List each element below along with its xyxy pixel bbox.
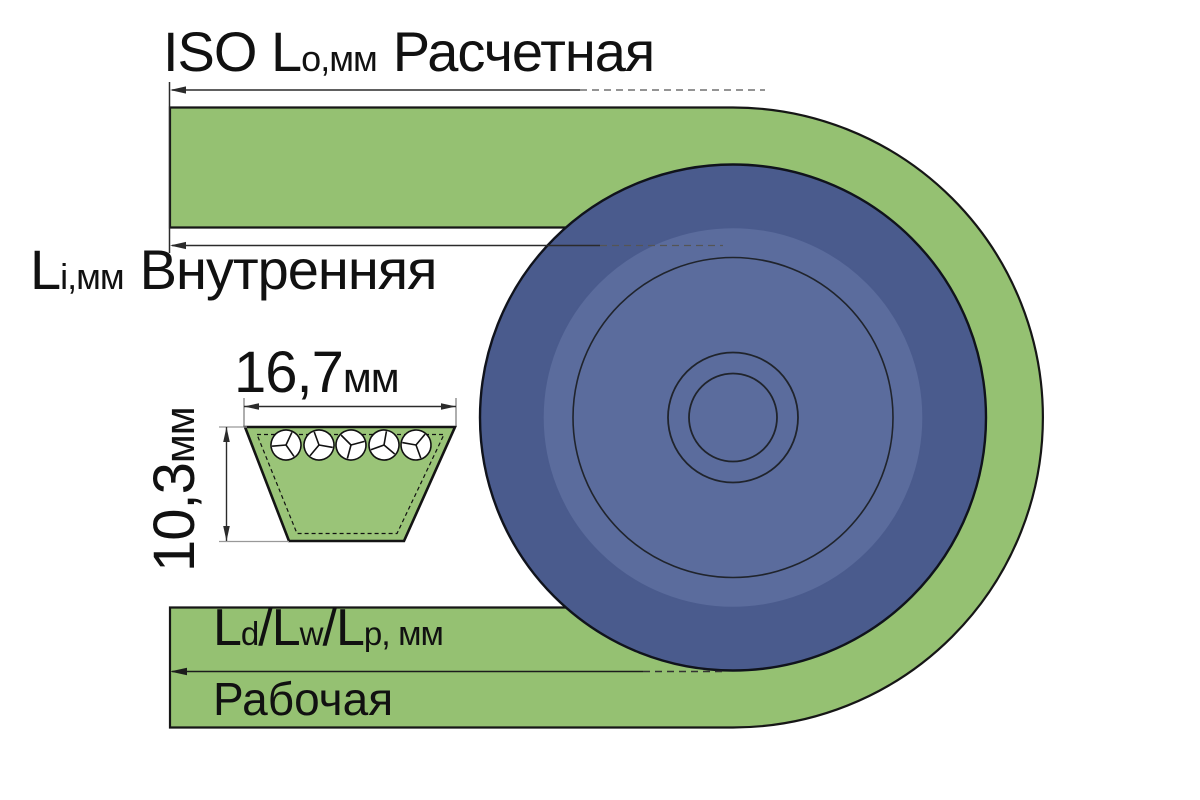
arrowhead-left-icon <box>170 86 186 93</box>
arrowhead-up-icon <box>223 427 230 442</box>
pitch-symbol-3: /L <box>323 599 364 657</box>
pitch-subscript-2: w <box>300 615 323 652</box>
width-dimension-label: 16,7мм <box>234 344 399 402</box>
inner-length-units: ,мм <box>67 256 124 297</box>
pulley-face-disc <box>543 228 923 608</box>
inner-length-symbol: L <box>30 238 60 301</box>
outer-length-dimension <box>170 86 765 93</box>
outer-length-label: ISO Lo,ммРасчетная <box>163 24 654 80</box>
inner-length-label: Li,ммВнутренняя <box>30 242 436 298</box>
arrowhead-down-icon <box>223 526 230 541</box>
outer-length-units: ,мм <box>320 38 377 79</box>
arrowhead-right-icon <box>441 403 456 410</box>
height-units: мм <box>156 407 203 463</box>
working-length-label: Рабочая <box>213 676 393 722</box>
outer-length-subscript: o <box>301 38 320 79</box>
pitch-units: , мм <box>381 615 443 653</box>
diagram-canvas: ISO Lo,ммРасчетная Li,ммВнутренняя 16,7м… <box>0 0 1200 800</box>
height-dimension-label: 10,3мм <box>146 407 204 572</box>
inner-length-name: Внутренняя <box>140 238 437 301</box>
pitch-length-label: Ld/Lw/Lp, мм <box>213 602 443 654</box>
outer-length-symbol: ISO L <box>163 20 301 83</box>
belt-cross-section <box>245 424 455 541</box>
belt-pulley-diagram <box>0 0 1200 800</box>
outer-length-name: Расчетная <box>393 20 655 83</box>
width-value: 16,7 <box>234 340 343 405</box>
pitch-symbol-2: /L <box>258 599 299 657</box>
width-units: мм <box>343 354 399 401</box>
pitch-subscript-3: p <box>364 615 381 652</box>
height-value: 10,3 <box>142 463 207 572</box>
pitch-subscript-1: d <box>241 615 258 652</box>
pitch-symbol-1: L <box>213 599 241 657</box>
